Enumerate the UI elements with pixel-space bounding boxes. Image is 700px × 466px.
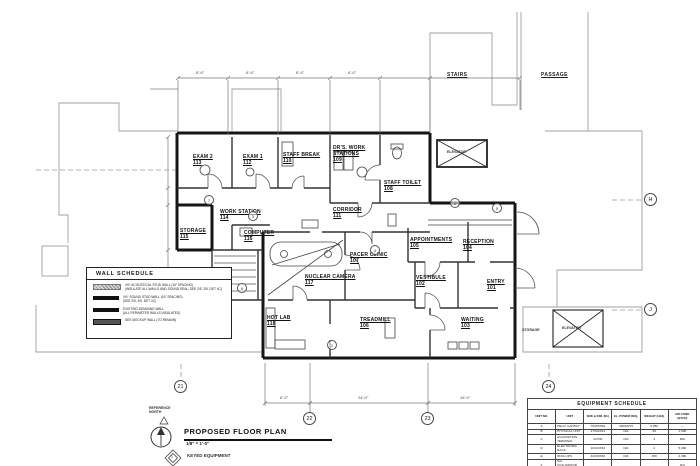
dim-bottom-2: 24'-0" <box>358 395 368 400</box>
room-label-pacer-clinic: PACER CLINIC107 <box>350 252 388 264</box>
north-arrow <box>151 417 171 447</box>
room-label-entry: ENTRY101 <box>487 279 505 291</box>
wall-schedule: WALL SCHEDULE 4½" ACOUSTICAL STUD WALL (… <box>86 267 232 339</box>
room-label-exam-1: EXAM 1112 <box>243 154 263 166</box>
wall-schedule-item: SEE MOCKUP WALL (TO REMAIN) <box>93 318 227 325</box>
keyed-symbol <box>165 450 181 466</box>
area-label-passage: PASSAGE <box>541 72 568 78</box>
cell: N/A <box>612 444 640 453</box>
equipment-row: F S/A COLLIMATOR STORAGE N/A <box>528 459 697 466</box>
keyed-marker: 4 <box>370 245 380 255</box>
dim-top-1: 8'-6" <box>196 70 204 75</box>
equipment-schedule-title: EQUIPMENT SCHEDULE <box>528 399 697 410</box>
cell <box>640 459 668 466</box>
equipment-row: C ACQUISITION TERMINAL 22X30 N/A 4 900 <box>528 435 697 444</box>
dim-top-4: 6'-0" <box>348 70 356 75</box>
dim-bottom-1: 8'-0" <box>280 395 288 400</box>
wall-item-text: (ALL PERIMETER WALLS INSULATED) <box>123 311 180 315</box>
cell: 4 <box>640 444 668 453</box>
wall-schedule-title: WALL SCHEDULE <box>87 268 231 280</box>
grid-bubble-21: 21 <box>174 380 187 393</box>
wall-schedule-item: 4½" ACOUSTICAL STUD WALL (16" SPACING) (… <box>93 283 227 291</box>
wall-swatch-existing <box>93 308 119 312</box>
cell <box>584 459 612 466</box>
room-label-computer: COMPUTER116 <box>244 230 274 242</box>
area-label-elevator-right: ELEVATOR <box>562 326 581 330</box>
page-title: PROPOSED FLOOR PLAN <box>184 427 287 436</box>
room-label-hot-lab: HOT LAB118 <box>267 315 291 327</box>
keyed-symbol-digit: 1 <box>171 455 173 459</box>
keyed-marker: 2 <box>327 340 337 350</box>
keyed-marker: 6 <box>237 283 247 293</box>
wall-swatch-sound <box>93 296 119 300</box>
area-label-elevator-top: ELEVATOR <box>447 150 466 154</box>
cell: 4 <box>640 435 668 444</box>
cell: F <box>528 459 556 466</box>
room-label-appointments: APPOINTMENTS105 <box>410 237 452 249</box>
wall-schedule-item: 4½" SOUND STUD WALL (16" SPACING) (SEE 2… <box>93 295 227 303</box>
room-label-staff-toilet: STAFF TOILET108 <box>384 180 421 192</box>
col-unit-no: UNIT NO. <box>528 410 556 424</box>
room-label-treadmill: TREADMILL106 <box>360 317 391 329</box>
room-label-reception: RECEPTION104 <box>463 239 494 251</box>
col-unit: UNIT <box>556 410 584 424</box>
keyed-marker: 5 <box>492 203 502 213</box>
cell: C <box>528 435 556 444</box>
area-label-storage-right: STORAGE <box>522 328 540 332</box>
equipment-row: D ELECTRONIC RACK 22X24X34 N/A 4 5,000 <box>528 444 697 453</box>
cell: 900 <box>668 435 696 444</box>
room-label-nuclear-camera: NUCLEAR CAMERA117 <box>305 274 356 286</box>
cell <box>612 459 640 466</box>
cell: N/A <box>612 435 640 444</box>
dim-top-2: 8'-6" <box>246 70 254 75</box>
cell: ACQUISITION TERMINAL <box>556 435 584 444</box>
keyed-marker: 1 <box>450 198 460 208</box>
grid-bubble-22: 22 <box>303 412 316 425</box>
cell: ELECTRONIC RACK <box>556 444 584 453</box>
room-label-storage-115: STORAGE115 <box>180 228 206 240</box>
equipment-schedule: EQUIPMENT SCHEDULE UNIT NO. UNIT SIZE & … <box>527 398 697 466</box>
col-size: SIZE & DIM. (IN.) <box>584 410 612 424</box>
grid-bubble-h: H <box>644 193 657 206</box>
cell: 22X30 <box>584 435 612 444</box>
cell: N/A <box>668 459 696 466</box>
cell: D <box>528 444 556 453</box>
grid-bubble-23: 23 <box>421 412 434 425</box>
keyed-marker: 7 <box>204 195 214 205</box>
room-label-vestibule: VESTIBULE102 <box>416 275 446 287</box>
wall-swatch-acoustical <box>93 284 121 290</box>
wall-swatch-mockup <box>93 319 121 325</box>
floor-plan-sheet: EXAM 2113 EXAM 1112 STAFF BREAK110 DR'S.… <box>0 0 700 466</box>
elevator-hatch <box>437 140 603 347</box>
room-label-drs-work-stations: DR'S. WORK STATIONS109 <box>333 145 365 163</box>
reference-north-label: REFERENCE NORTH <box>149 406 181 415</box>
area-label-stairs: STAIRS <box>447 72 467 78</box>
keyed-equipment-note: KEYED EQUIPMENT <box>187 453 231 458</box>
grid-bubble-j: J <box>644 303 657 316</box>
dim-top-3: 8'-6" <box>296 70 304 75</box>
keyed-marker: 3 <box>248 211 258 221</box>
wall-schedule-item: EXISTING DEMISING WALL (ALL PERIMETER WA… <box>93 307 227 315</box>
grid-bubble-24: 24 <box>542 380 555 393</box>
wall-item-text: SEE MOCKUP WALL (TO REMAIN) <box>125 318 176 322</box>
wall-item-text: (SEE 2/5, 3/5, DET 4C) <box>123 299 156 303</box>
col-power: EL. POWER REQ. <box>612 410 640 424</box>
dim-bottom-3: 16'-0" <box>460 395 470 400</box>
equipment-header-row: UNIT NO. UNIT SIZE & DIM. (IN.) EL. POWE… <box>528 410 697 424</box>
room-label-staff-break: STAFF BREAK110 <box>283 152 320 164</box>
room-label-corridor: CORRIDOR111 <box>333 207 362 219</box>
col-weight: WEIGHT (LBS) <box>640 410 668 424</box>
col-btuh: AIR COND. (BTUH) <box>668 410 696 424</box>
cell: S/A COLLIMATOR STORAGE <box>556 459 584 466</box>
wall-item-text: (INSULATE ALL WALLS AND SOUND SEAL; SEE … <box>125 287 222 291</box>
cell: 5,000 <box>668 444 696 453</box>
cell: 22X24X34 <box>584 444 612 453</box>
room-label-exam-2: EXAM 2113 <box>193 154 213 166</box>
plan-scale: 1/8" = 1'-0" <box>186 441 209 446</box>
room-label-waiting: WAITING103 <box>461 317 484 329</box>
